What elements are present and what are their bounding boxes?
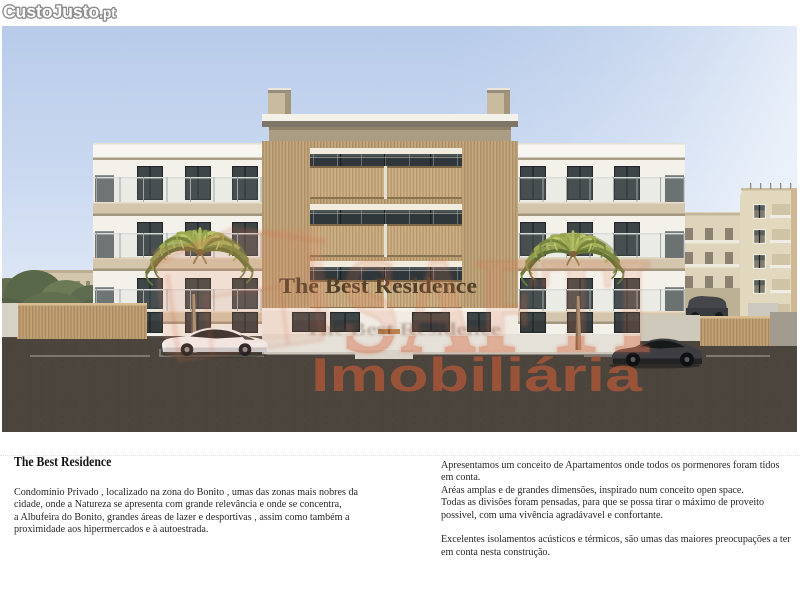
svg-text:CustoJusto.pt: CustoJusto.pt: [3, 2, 116, 22]
svg-text:Imobiliária: Imobiliária: [311, 348, 643, 401]
svg-text:The Best Residence: The Best Residence: [305, 319, 501, 339]
